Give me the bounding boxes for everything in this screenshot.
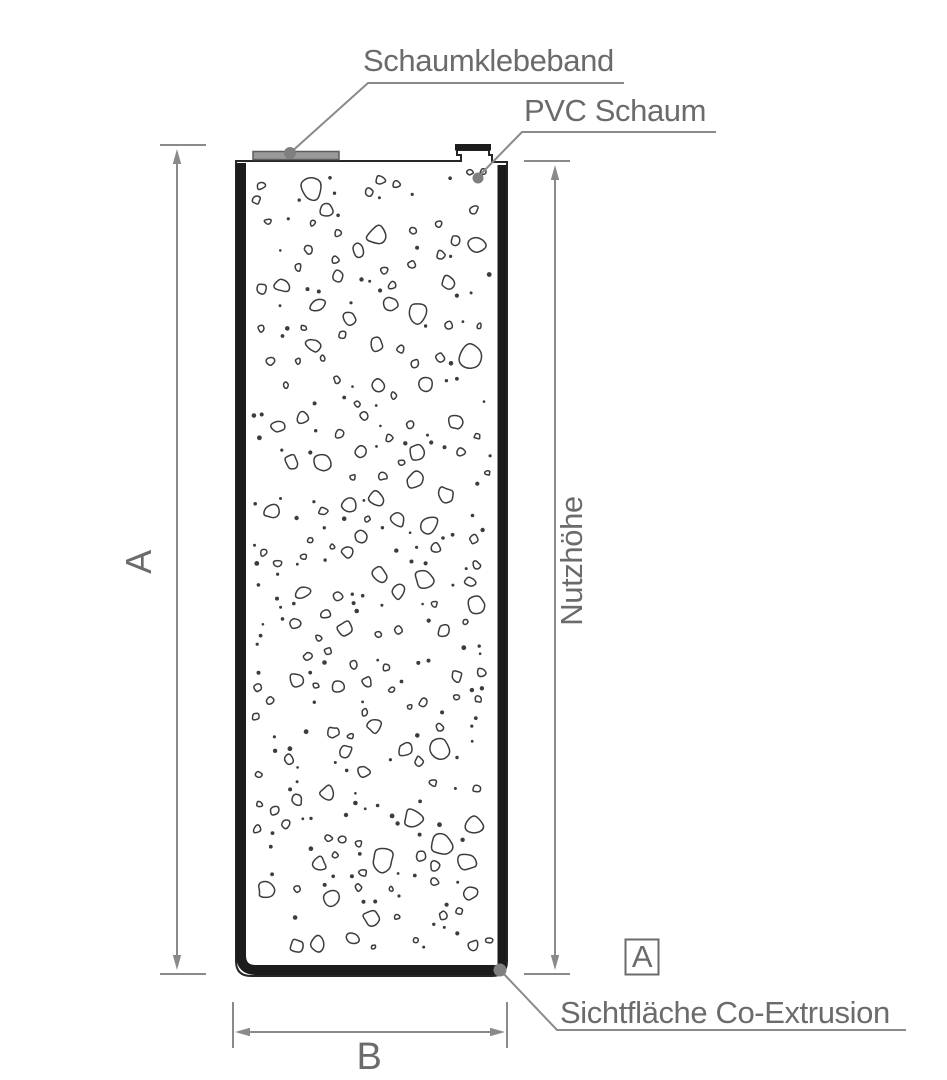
foam-cell bbox=[316, 635, 322, 641]
foam-cell bbox=[381, 267, 388, 274]
visible-surface-label: Sichtfläche Co-Extrusion bbox=[560, 995, 890, 1030]
foam-cell bbox=[335, 230, 341, 237]
foam-cell bbox=[252, 196, 260, 204]
foam-grain bbox=[309, 846, 314, 851]
foam-cell bbox=[355, 446, 366, 458]
foam-grain bbox=[403, 441, 407, 445]
foam-grain bbox=[276, 573, 279, 576]
foam-grain bbox=[269, 845, 273, 849]
foam-grain bbox=[424, 324, 427, 327]
foam-cell bbox=[395, 626, 403, 634]
foam-grain bbox=[287, 217, 290, 220]
foam-grain bbox=[257, 435, 262, 440]
foam-cell bbox=[330, 544, 335, 549]
foam-grain bbox=[426, 434, 429, 437]
dim-b-arrow-left bbox=[235, 1028, 250, 1036]
visible-surface-leader-dot bbox=[494, 964, 507, 977]
foam-cell bbox=[391, 392, 396, 399]
foam-cell bbox=[445, 321, 452, 329]
foam-cell bbox=[439, 487, 454, 503]
foam-grain bbox=[427, 659, 431, 663]
foam-grain bbox=[478, 644, 481, 647]
foam-grain bbox=[376, 804, 380, 808]
foam-cell bbox=[408, 261, 416, 268]
foam-cell bbox=[320, 203, 333, 215]
foam-cell bbox=[328, 727, 339, 737]
foam-grain bbox=[454, 787, 457, 790]
foam-grain bbox=[256, 643, 259, 646]
foam-grain bbox=[429, 440, 433, 444]
foam-grain bbox=[424, 561, 428, 565]
foam-cell bbox=[297, 412, 308, 424]
foam-grain bbox=[449, 361, 454, 366]
dim-nutzhoehe-label: Nutzhöhe bbox=[554, 496, 589, 626]
foam-grain bbox=[443, 445, 447, 449]
foam-grain bbox=[292, 602, 296, 606]
foam-cell bbox=[290, 674, 303, 687]
foam-grain bbox=[334, 761, 337, 764]
foam-cell bbox=[350, 661, 357, 670]
foam-grain bbox=[455, 294, 459, 298]
foam-grain bbox=[323, 883, 327, 887]
foam-grain bbox=[470, 725, 473, 728]
pvc-foam-leader-dot bbox=[473, 173, 484, 184]
foam-cell bbox=[294, 886, 300, 893]
foam-cell bbox=[435, 221, 441, 227]
foam-grain bbox=[344, 813, 348, 817]
foam-grain bbox=[279, 606, 282, 609]
foam-grain bbox=[323, 526, 326, 529]
foam-grain bbox=[416, 661, 420, 665]
foam-grain bbox=[323, 558, 326, 561]
foam-cell bbox=[468, 596, 484, 614]
foam-grain bbox=[342, 516, 347, 521]
foam-cell bbox=[451, 236, 460, 246]
foam-cell bbox=[485, 471, 490, 475]
foam-cell bbox=[324, 891, 340, 907]
foam-cell bbox=[285, 754, 294, 764]
foam-grain bbox=[394, 548, 398, 552]
foam-grain bbox=[354, 792, 357, 795]
foam-grain bbox=[449, 255, 452, 258]
foam-grain bbox=[317, 290, 321, 294]
foam-grain bbox=[312, 500, 315, 503]
foam-cell bbox=[410, 445, 424, 460]
foam-grain bbox=[259, 634, 263, 638]
foam-grain bbox=[308, 671, 312, 675]
foam-grain bbox=[378, 196, 381, 199]
foam-cell bbox=[320, 355, 324, 361]
foam-cell bbox=[292, 794, 301, 805]
foam-grain bbox=[471, 514, 475, 518]
foam-grain bbox=[461, 645, 466, 650]
foam-cell bbox=[324, 648, 331, 655]
foam-grain bbox=[296, 780, 299, 783]
foam-grain bbox=[448, 176, 452, 180]
foam-grain bbox=[480, 686, 484, 690]
foam-cell bbox=[332, 852, 338, 858]
foam-grain bbox=[308, 450, 312, 454]
foam-grain bbox=[475, 482, 479, 486]
notch-cap bbox=[455, 144, 491, 151]
foam-grain bbox=[254, 561, 259, 566]
foam-cell bbox=[332, 256, 339, 263]
foam-grain bbox=[440, 710, 444, 714]
foam-cell bbox=[375, 632, 381, 638]
foam-cell bbox=[478, 668, 487, 676]
foam-grain bbox=[451, 533, 455, 537]
foam-tape-label: Schaumklebeband bbox=[363, 43, 614, 78]
foam-grain bbox=[409, 531, 412, 534]
foam-cell bbox=[295, 264, 301, 272]
foam-cell bbox=[290, 619, 301, 629]
foam-grain bbox=[288, 746, 293, 751]
foam-grain bbox=[273, 735, 276, 738]
foam-grain bbox=[362, 900, 366, 904]
foam-cell bbox=[332, 681, 344, 692]
foam-cell bbox=[362, 708, 367, 716]
foam-grain bbox=[342, 396, 346, 400]
foam-grain bbox=[313, 401, 317, 405]
foam-cell bbox=[394, 915, 399, 920]
dim-a-arrow-down bbox=[173, 955, 181, 970]
foam-cell bbox=[416, 851, 425, 861]
foam-grain bbox=[456, 881, 459, 884]
foam-cell bbox=[440, 911, 448, 920]
dim-a-arrow-up bbox=[173, 149, 181, 164]
foam-cell bbox=[393, 181, 400, 188]
foam-grain bbox=[328, 176, 332, 180]
foam-grain bbox=[279, 497, 282, 500]
dim-nutzhoehe-arrow-down bbox=[551, 955, 559, 970]
foam-tape-leader-dot bbox=[284, 147, 296, 159]
foam-cell bbox=[470, 206, 478, 214]
foam-cell bbox=[335, 429, 343, 438]
foam-cell bbox=[463, 619, 468, 624]
section-marker-label: A bbox=[632, 939, 653, 974]
foam-cell bbox=[454, 695, 460, 700]
foam-grain bbox=[421, 603, 424, 606]
foam-grain bbox=[304, 729, 309, 734]
pvc-foam-leader-line bbox=[478, 132, 716, 177]
foam-cell bbox=[398, 460, 404, 465]
foam-cell bbox=[389, 886, 393, 891]
foam-grain bbox=[351, 593, 354, 596]
foam-cell bbox=[407, 705, 411, 710]
foam-grain bbox=[400, 680, 404, 684]
foam-cell bbox=[271, 806, 279, 815]
foam-grain bbox=[489, 454, 492, 457]
dimension-width: B bbox=[233, 1002, 507, 1078]
foam-cell bbox=[350, 475, 355, 480]
foam-cell bbox=[254, 684, 262, 692]
foam-cell bbox=[473, 785, 481, 792]
foam-cell bbox=[266, 357, 275, 365]
foam-grain bbox=[397, 872, 400, 875]
foam-cell bbox=[273, 561, 281, 567]
foam-cell bbox=[314, 455, 331, 471]
foam-grain bbox=[415, 546, 418, 549]
foam-cell bbox=[467, 170, 474, 175]
foam-grain bbox=[487, 272, 492, 277]
foam-cell bbox=[353, 243, 363, 257]
foam-grain bbox=[313, 701, 316, 704]
foam-cell bbox=[283, 382, 288, 388]
foam-cell bbox=[333, 592, 342, 601]
foam-cell bbox=[475, 696, 481, 703]
foam-cell bbox=[282, 820, 290, 829]
foam-cell bbox=[365, 516, 371, 522]
dim-nutzhoehe-arrow-up bbox=[551, 165, 559, 180]
foam-grain bbox=[361, 594, 365, 598]
foam-cell bbox=[313, 683, 319, 688]
foam-grain bbox=[252, 413, 257, 418]
foam-cell bbox=[347, 734, 353, 739]
foam-cell bbox=[257, 284, 266, 294]
foam-cell bbox=[470, 534, 478, 543]
foam-grain bbox=[432, 923, 435, 926]
foam-grain bbox=[333, 192, 336, 195]
foam-grain bbox=[418, 833, 422, 837]
foam-grain bbox=[294, 516, 298, 520]
dim-a-label: A bbox=[118, 550, 159, 574]
foam-grain bbox=[361, 701, 364, 704]
foam-grain bbox=[270, 872, 274, 876]
foam-grain bbox=[483, 400, 486, 403]
foam-grain bbox=[443, 926, 446, 929]
foam-cell bbox=[333, 270, 343, 282]
foam-cell bbox=[355, 884, 361, 892]
foam-cell bbox=[355, 841, 361, 847]
foam-cell bbox=[477, 323, 481, 329]
profile-cross-section-diagram: A Nutzhöhe B Schaumklebeband bbox=[0, 0, 947, 1080]
foam-cell bbox=[410, 227, 417, 233]
foam-cell bbox=[366, 188, 373, 196]
foam-grain bbox=[415, 733, 420, 738]
foam-grain bbox=[281, 334, 285, 338]
foam-cell bbox=[321, 610, 331, 618]
foam-grain bbox=[455, 377, 459, 381]
foam-cell bbox=[486, 938, 493, 943]
foam-cell bbox=[258, 325, 264, 332]
foam-grain bbox=[293, 915, 298, 920]
foam-grain bbox=[354, 609, 359, 614]
foam-grain bbox=[257, 671, 261, 675]
foam-cell bbox=[458, 854, 477, 869]
foam-grain bbox=[380, 604, 383, 607]
foam-grain bbox=[441, 536, 445, 540]
dimension-usable-height: Nutzhöhe bbox=[524, 161, 589, 974]
foam-grain bbox=[451, 584, 454, 587]
foam-grain bbox=[349, 301, 352, 304]
foam-grain bbox=[296, 563, 299, 566]
foam-cell bbox=[449, 416, 463, 429]
foam-grain bbox=[271, 831, 275, 835]
foam-grain bbox=[358, 852, 362, 856]
foam-grain bbox=[273, 749, 277, 753]
section-marker: A bbox=[626, 939, 659, 975]
foam-grain bbox=[373, 900, 377, 904]
foam-grain bbox=[411, 193, 414, 196]
dimension-overall-height: A bbox=[118, 145, 206, 974]
foam-cell bbox=[307, 538, 312, 543]
foam-grain bbox=[351, 385, 354, 388]
foam-grain bbox=[279, 249, 282, 252]
foam-grain bbox=[479, 652, 482, 655]
foam-grain bbox=[375, 445, 378, 448]
foam-grain bbox=[397, 894, 400, 897]
foam-grain bbox=[460, 838, 464, 842]
foam-cell bbox=[371, 945, 375, 949]
foam-grain bbox=[465, 567, 468, 570]
foam-cell bbox=[431, 861, 440, 871]
foam-profile-body bbox=[236, 144, 507, 976]
foam-grain bbox=[314, 429, 317, 432]
foam-grain bbox=[364, 807, 367, 810]
foam-grain bbox=[455, 931, 459, 935]
foam-cell bbox=[325, 835, 333, 841]
foam-cell bbox=[468, 940, 478, 950]
foam-grain bbox=[359, 277, 363, 281]
foam-grain bbox=[470, 688, 474, 692]
dim-b-arrow-right bbox=[490, 1028, 505, 1036]
foam-cell bbox=[384, 297, 399, 310]
foam-grain bbox=[413, 874, 417, 878]
foam-grain bbox=[262, 623, 265, 626]
foam-cell bbox=[354, 401, 360, 407]
foam-grain bbox=[298, 198, 301, 201]
foam-grain bbox=[288, 787, 292, 791]
foam-cell bbox=[407, 421, 414, 429]
foam-grain bbox=[462, 320, 465, 323]
foam-cell bbox=[266, 697, 273, 705]
foam-grain bbox=[379, 425, 382, 428]
foam-cell bbox=[338, 836, 346, 843]
foam-grain bbox=[390, 814, 395, 819]
foam-grain bbox=[301, 817, 304, 820]
foam-grain bbox=[331, 875, 335, 879]
foam-grain bbox=[474, 716, 478, 720]
foam-cell bbox=[255, 772, 262, 778]
foam-grain bbox=[471, 740, 474, 743]
foam-cell bbox=[431, 601, 437, 607]
foam-cell bbox=[383, 664, 389, 671]
foam-grain bbox=[445, 903, 449, 907]
foam-grain bbox=[480, 528, 484, 532]
foam-grain bbox=[260, 413, 264, 417]
foam-grain bbox=[470, 291, 473, 294]
foam-grain bbox=[275, 597, 279, 601]
technical-drawing-canvas: A Nutzhöhe B Schaumklebeband bbox=[0, 0, 947, 1080]
pvc-foam-label: PVC Schaum bbox=[524, 93, 706, 128]
foam-grain bbox=[281, 617, 285, 621]
foam-cell bbox=[468, 238, 486, 253]
foam-grain bbox=[368, 280, 371, 283]
foam-grain bbox=[306, 287, 310, 291]
foam-cell bbox=[474, 433, 480, 438]
foam-grain bbox=[410, 560, 414, 564]
foam-cell bbox=[334, 376, 340, 383]
foam-cell bbox=[456, 908, 463, 914]
foam-cell bbox=[457, 448, 466, 456]
foam-grain bbox=[437, 822, 442, 827]
foam-grain bbox=[253, 544, 256, 547]
foam-grain bbox=[350, 874, 354, 878]
foam-grain bbox=[285, 326, 290, 331]
foam-cell bbox=[438, 625, 449, 637]
foam-tape bbox=[253, 152, 339, 160]
foam-grain bbox=[352, 601, 356, 605]
foam-grain bbox=[415, 246, 419, 250]
foam-cell bbox=[290, 939, 303, 952]
foam-grain bbox=[445, 379, 448, 382]
foam-cell bbox=[271, 421, 285, 432]
foam-grain bbox=[418, 800, 422, 804]
foam-cell bbox=[413, 938, 418, 943]
foam-cell bbox=[257, 801, 263, 806]
foam-grain bbox=[375, 404, 378, 407]
foam-grain bbox=[279, 304, 282, 307]
foam-grain bbox=[378, 288, 382, 292]
foam-cell bbox=[295, 358, 300, 364]
foam-grain bbox=[381, 526, 384, 529]
foam-cell bbox=[452, 671, 461, 682]
foam-grain bbox=[389, 758, 392, 761]
foam-cell bbox=[386, 434, 393, 441]
foam-cell bbox=[339, 331, 346, 338]
foam-cell bbox=[379, 472, 388, 480]
foam-grain bbox=[336, 214, 340, 218]
dim-b-label: B bbox=[357, 1036, 382, 1078]
foam-cell bbox=[253, 713, 260, 720]
foam-cell bbox=[399, 743, 412, 756]
foam-grain bbox=[427, 619, 431, 623]
foam-cell bbox=[300, 554, 306, 559]
foam-cell bbox=[419, 377, 432, 391]
foam-cell bbox=[360, 412, 368, 420]
foam-grain bbox=[395, 821, 399, 825]
foam-grain bbox=[376, 659, 379, 662]
foam-cell bbox=[371, 337, 383, 351]
foam-grain bbox=[296, 766, 299, 769]
foam-cell bbox=[301, 325, 306, 330]
foam-cell bbox=[411, 359, 418, 367]
foam-grain bbox=[253, 502, 257, 506]
foam-grain bbox=[422, 946, 425, 949]
foam-grain bbox=[280, 449, 283, 452]
foam-grain bbox=[353, 801, 358, 806]
foam-grain bbox=[363, 499, 366, 502]
foam-grain bbox=[455, 756, 458, 759]
foam-grain bbox=[345, 769, 349, 773]
foam-grain bbox=[309, 817, 312, 820]
foam-grain bbox=[322, 660, 327, 665]
foam-cell bbox=[359, 870, 367, 876]
callout-pvc-foam: PVC Schaum bbox=[473, 93, 717, 184]
foam-grain bbox=[257, 583, 261, 587]
foam-cell bbox=[355, 530, 367, 542]
foam-cell bbox=[264, 219, 271, 224]
